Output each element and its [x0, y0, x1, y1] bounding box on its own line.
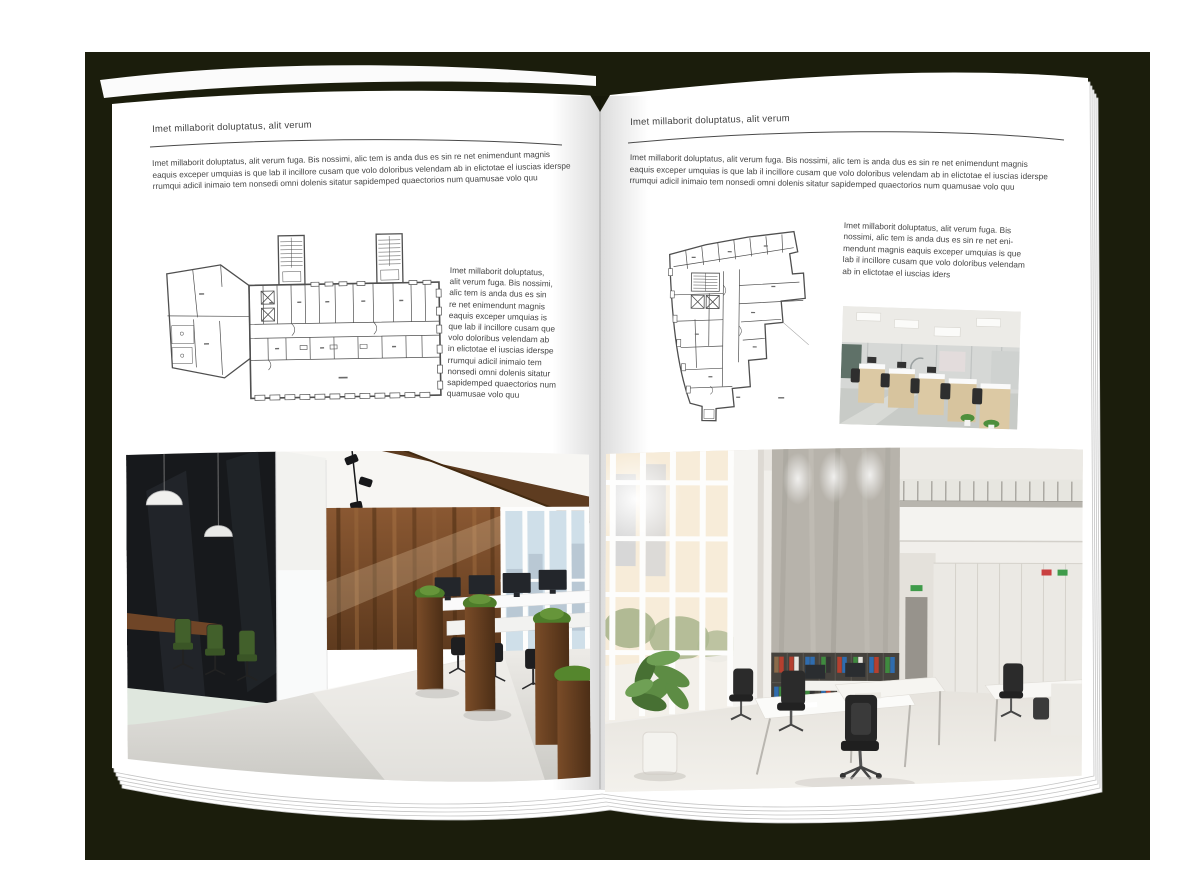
- magazine-mockup: Imet millaborit doluptatus, alit verum I…: [0, 0, 1200, 891]
- floor-plan-drawing: [158, 225, 446, 410]
- wall-washer-light: [783, 453, 813, 505]
- right-floor-plan: [650, 224, 812, 424]
- exit-sign: [1058, 570, 1068, 576]
- far-doors: [990, 351, 1019, 390]
- right-side-paragraph: Imet millaborit doluptatus, alit verum f…: [842, 220, 1026, 283]
- concrete-wall: [771, 445, 900, 655]
- small-office-photo: [839, 306, 1021, 430]
- mezzanine: [900, 445, 1083, 542]
- right-intro-paragraph: Imet millaborit doluptatus, alit verum f…: [629, 152, 1048, 194]
- dark-office-scene: [126, 449, 591, 791]
- waste-bin: [1033, 697, 1049, 719]
- left-office-photo: [126, 449, 591, 791]
- safety-sign: [1042, 570, 1052, 576]
- hallway-doorway: [905, 597, 927, 679]
- balcony-fascia: [900, 507, 1083, 542]
- exit-sign: [910, 585, 922, 591]
- left-side-column: Imet millaborit doluptatus, alit verum f…: [447, 265, 559, 402]
- left-floor-plan: [158, 225, 446, 410]
- floor-plan-drawing: [650, 224, 812, 424]
- right-office-photo: [605, 444, 1083, 794]
- bright-office-scene: [605, 444, 1083, 794]
- pedestal-cabinet: [1051, 684, 1082, 736]
- cubicle-office-scene: [839, 306, 1021, 430]
